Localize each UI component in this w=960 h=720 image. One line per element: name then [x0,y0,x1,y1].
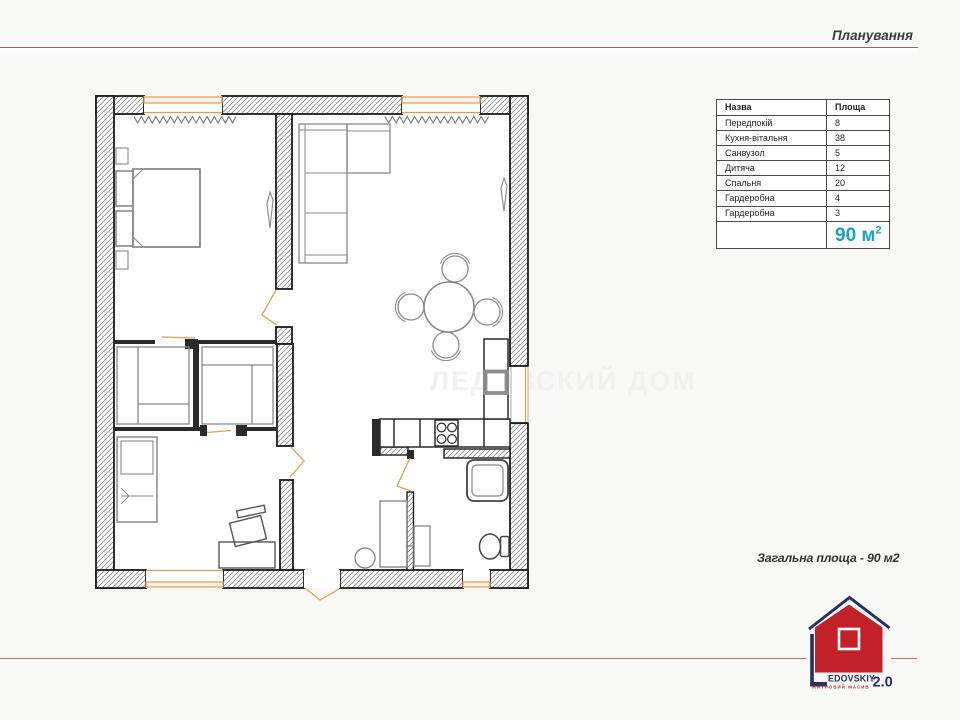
svg-text:2.0: 2.0 [873,675,893,691]
svg-text:EDOVSKIY: EDOVSKIY [828,674,875,684]
svg-text:ЖИТЛОВИЙ МАСИВ: ЖИТЛОВИЙ МАСИВ [811,685,870,690]
svg-text:ЛЕДОВСКИЙ ДОМ: ЛЕДОВСКИЙ ДОМ [430,365,697,396]
